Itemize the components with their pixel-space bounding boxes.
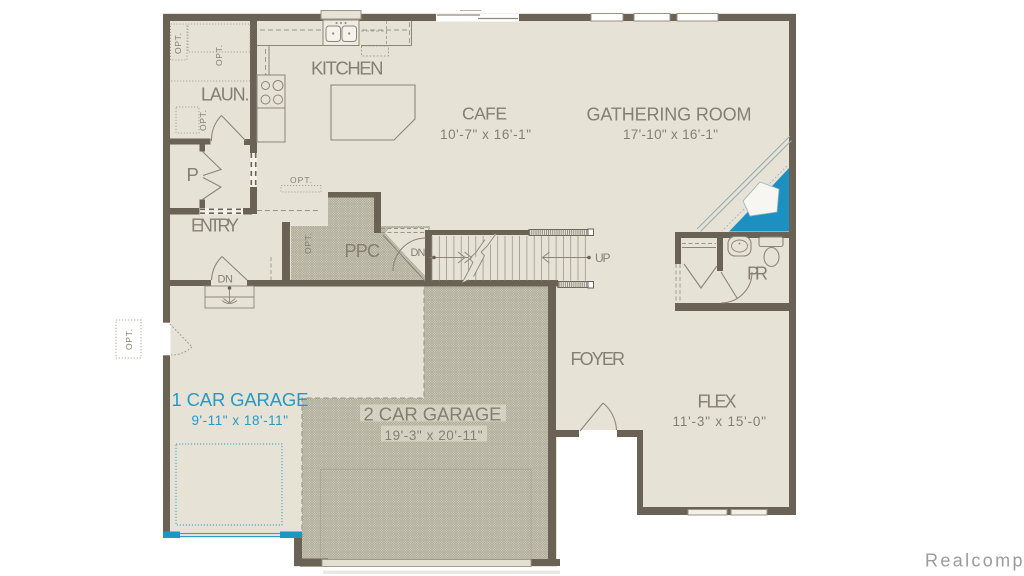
svg-text:DN: DN	[411, 247, 426, 259]
svg-text:ENTRY: ENTRY	[191, 216, 239, 236]
svg-text:2 CAR GARAGE: 2 CAR GARAGE	[364, 404, 502, 425]
svg-text:10'-7" x 16'-1": 10'-7" x 16'-1"	[440, 127, 531, 142]
svg-text:17'-10" x 16'-1": 17'-10" x 16'-1"	[623, 127, 718, 142]
svg-text:PPC: PPC	[345, 241, 381, 261]
svg-text:FLEX: FLEX	[698, 392, 737, 412]
svg-text:LAUN.: LAUN.	[201, 85, 250, 105]
svg-text:UP: UP	[595, 251, 611, 265]
svg-text:P: P	[187, 164, 199, 185]
svg-text:OPT.: OPT.	[303, 233, 313, 254]
svg-text:OPT.: OPT.	[198, 110, 208, 131]
svg-text:PR: PR	[747, 264, 768, 284]
svg-text:19'-3" x 20'-11": 19'-3" x 20'-11"	[385, 428, 483, 443]
svg-text:DN: DN	[218, 274, 234, 286]
svg-text:OPT.: OPT.	[124, 329, 134, 350]
svg-text:CAFE: CAFE	[462, 104, 507, 124]
svg-text:11'-3" x 15'-0": 11'-3" x 15'-0"	[673, 414, 767, 429]
svg-text:OPT.: OPT.	[173, 33, 183, 54]
svg-text:Realcomp: Realcomp	[925, 551, 1023, 571]
svg-text:GATHERING ROOM: GATHERING ROOM	[587, 105, 752, 125]
svg-text:1 CAR GARAGE: 1 CAR GARAGE	[172, 389, 309, 410]
svg-text:OPT.: OPT.	[214, 45, 224, 66]
svg-text:FOYER: FOYER	[571, 349, 626, 369]
svg-text:KITCHEN: KITCHEN	[311, 58, 384, 79]
svg-text:9'-11" x 18'-11": 9'-11" x 18'-11"	[192, 413, 289, 428]
svg-text:OPT.: OPT.	[290, 175, 312, 185]
